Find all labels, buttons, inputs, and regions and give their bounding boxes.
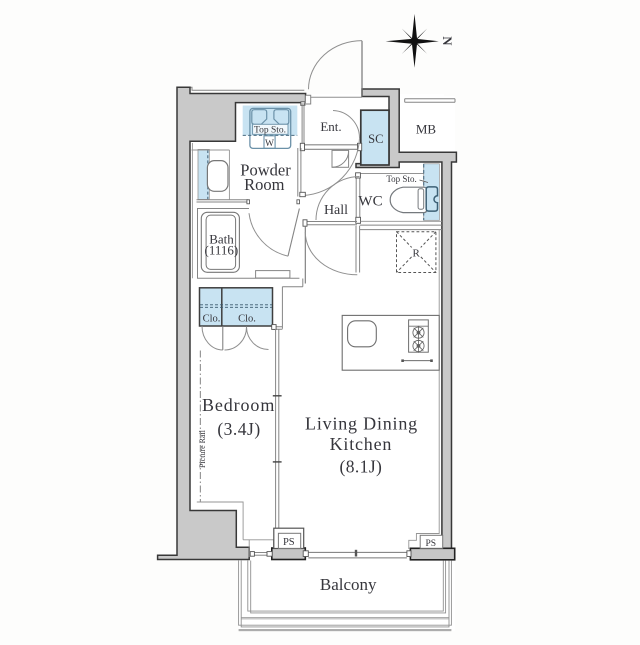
svg-text:MB: MB (416, 122, 437, 137)
svg-text:Hall: Hall (324, 203, 348, 218)
svg-text:R: R (413, 248, 421, 260)
svg-text:Balcony: Balcony (320, 575, 377, 594)
svg-text:N: N (440, 36, 454, 45)
svg-text:W: W (265, 139, 274, 149)
svg-text:SC: SC (368, 132, 383, 146)
svg-text:Living Dining: Living Dining (305, 413, 418, 433)
svg-text:PS: PS (426, 539, 437, 549)
svg-text:Ent.: Ent. (320, 119, 341, 134)
svg-text:Top Sto.: Top Sto. (254, 126, 286, 136)
svg-text:PS: PS (283, 537, 295, 548)
svg-text:(1116): (1116) (205, 243, 239, 258)
svg-text:Clo.: Clo. (238, 314, 256, 325)
svg-text:Bedroom: Bedroom (202, 395, 275, 415)
svg-text:Kitchen: Kitchen (330, 434, 393, 454)
svg-text:WC: WC (358, 194, 382, 210)
svg-text:Clo.: Clo. (203, 314, 221, 325)
svg-text:Top Sto.: Top Sto. (386, 174, 416, 184)
svg-text:(3.4J): (3.4J) (217, 419, 260, 439)
svg-text:Picture Rail: Picture Rail (198, 429, 207, 468)
svg-text:(8.1J): (8.1J) (340, 457, 383, 477)
svg-text:Room: Room (244, 175, 285, 194)
